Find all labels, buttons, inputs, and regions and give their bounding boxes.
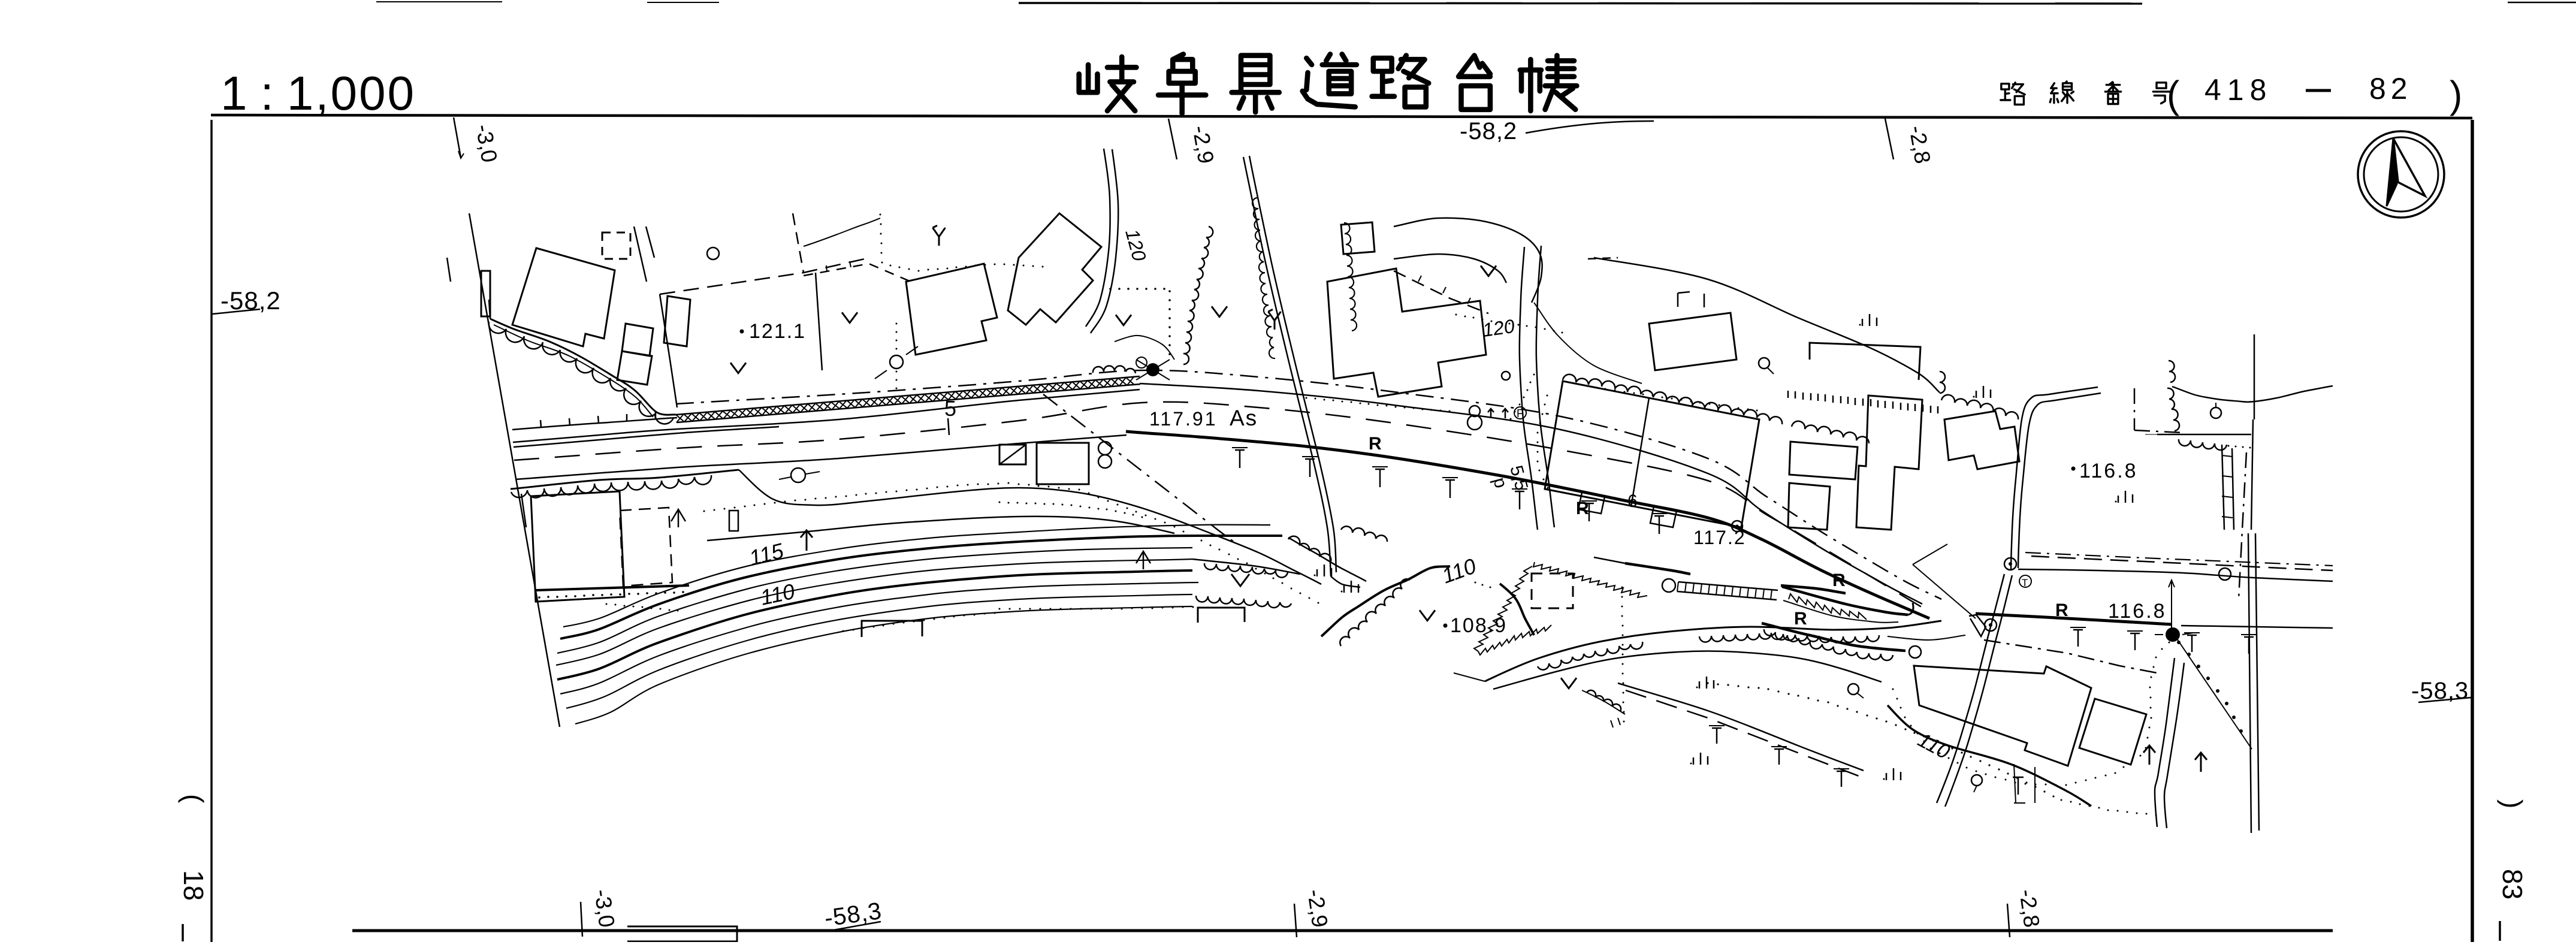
svg-text:121.1: 121.1 bbox=[749, 320, 806, 343]
svg-text:R: R bbox=[1369, 434, 1382, 454]
svg-text:83: 83 bbox=[2497, 869, 2528, 899]
svg-text:418: 418 bbox=[2204, 73, 2272, 107]
svg-text:-58,2: -58,2 bbox=[1460, 118, 1517, 144]
svg-text:116.8: 116.8 bbox=[2079, 460, 2138, 482]
svg-text:120: 120 bbox=[1481, 315, 1516, 341]
svg-text:116.8: 116.8 bbox=[2108, 600, 2167, 623]
svg-text:As: As bbox=[1230, 406, 1258, 430]
svg-text:(: ( bbox=[2167, 73, 2179, 116]
svg-text:82: 82 bbox=[2369, 72, 2412, 105]
svg-text:T: T bbox=[2022, 577, 2028, 588]
svg-text:18: 18 bbox=[178, 870, 209, 901]
svg-text:R: R bbox=[1794, 609, 1807, 629]
svg-text:): ) bbox=[2497, 799, 2528, 808]
svg-text:(: ( bbox=[178, 794, 209, 804]
svg-text:1 : 1,000: 1 : 1,000 bbox=[221, 67, 416, 120]
svg-text:R: R bbox=[2055, 600, 2068, 620]
svg-text:117.2: 117.2 bbox=[1693, 527, 1746, 548]
svg-text:): ) bbox=[2450, 73, 2462, 116]
svg-text:5: 5 bbox=[944, 396, 956, 421]
svg-text:F: F bbox=[1517, 407, 1523, 419]
svg-text:108.9: 108.9 bbox=[1450, 614, 1507, 637]
svg-text:R: R bbox=[1832, 570, 1846, 590]
svg-text:117.91: 117.91 bbox=[1149, 408, 1218, 430]
